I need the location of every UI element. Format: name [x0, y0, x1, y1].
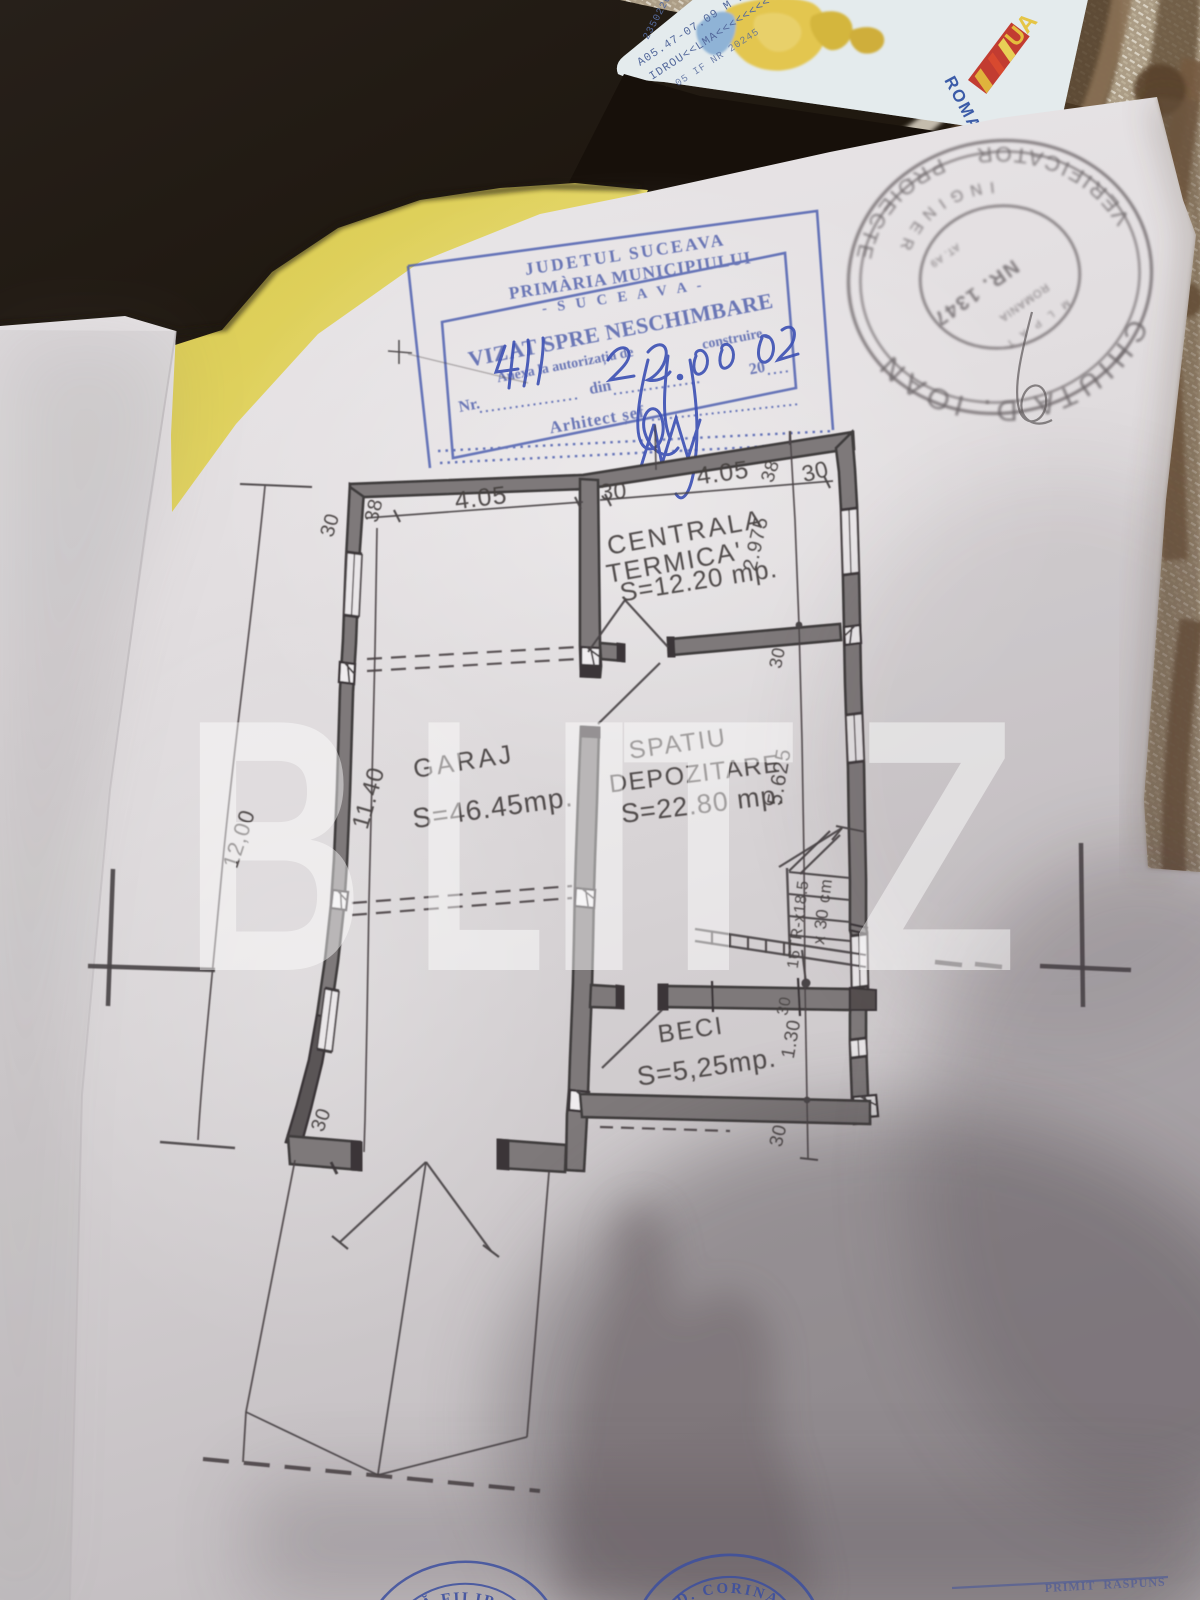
svg-text:T: T [621, 645, 796, 1047]
svg-text:30: 30 [599, 477, 627, 505]
svg-text:L: L [414, 644, 546, 1047]
svg-text:B: B [183, 644, 365, 1046]
svg-text:Z: Z [851, 645, 1018, 1047]
